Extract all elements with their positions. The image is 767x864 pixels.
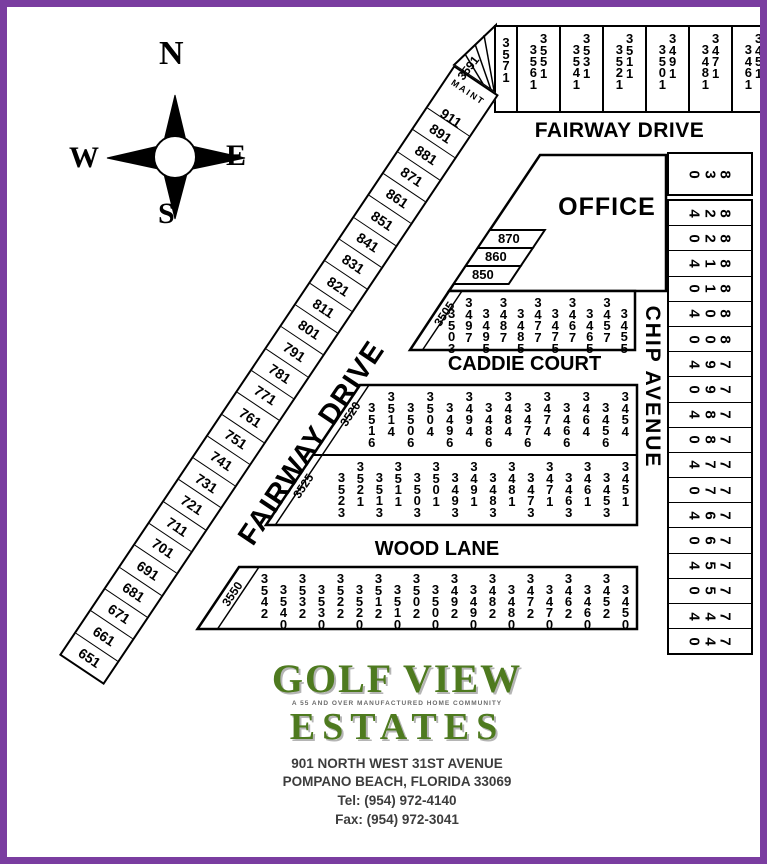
lot-cell: 3503: [443, 295, 460, 349]
lot-number-3492: 3492: [451, 573, 458, 627]
lot-cell: 3523: [332, 459, 351, 523]
caddie-court-north-lots: 3503349734953487348534773475346734653457…: [443, 295, 633, 349]
lot-cell: 3454: [616, 389, 636, 453]
lot-number-3497: 3497: [465, 297, 472, 349]
rotated-digit: 7: [717, 511, 734, 519]
lot-number-3462: 3462: [565, 573, 572, 627]
lot-number-3471: 3471: [712, 33, 719, 111]
top-row-cell: 34813471: [688, 27, 731, 111]
lot-860: 860: [485, 249, 507, 264]
lot-cell: 3501: [427, 459, 446, 523]
compass-s: S: [158, 197, 175, 231]
top-row-cell: 35613551: [516, 27, 559, 111]
rotated-digit: 0: [686, 385, 703, 393]
lot-cell: 3482: [483, 571, 502, 627]
lot-cell-760: 067: [669, 527, 751, 552]
lot-cell: 3450: [616, 571, 635, 627]
lot-number-3541: 3541: [573, 44, 580, 111]
rotated-digit: 7: [717, 536, 734, 544]
lot-number-3540: 3540: [280, 584, 287, 627]
lot-cell: 3462: [559, 571, 578, 627]
lot-cell: 3470: [540, 571, 559, 627]
lot-number-3457: 3457: [603, 297, 610, 349]
lot-cell: 3500: [426, 571, 445, 627]
lot-cell-740: 047: [669, 628, 751, 653]
lot-cell-784: 487: [669, 402, 751, 427]
lot-cell-750: 057: [669, 578, 751, 603]
street-caddie-court: CADDIE COURT: [427, 353, 622, 376]
lot-number-3561: 3561: [530, 44, 537, 111]
lot-cell-780: 087: [669, 427, 751, 452]
chip-avenue-lot-column: 038 428028418018408008497097487087477077…: [667, 152, 753, 655]
compass-e: E: [226, 139, 246, 173]
lot-number-3496: 3496: [446, 402, 453, 453]
lot-cell: 3520: [350, 571, 369, 627]
rotated-digit: 4: [686, 612, 703, 620]
lot-850: 850: [472, 267, 494, 282]
lot-number-3471: 3471: [546, 461, 553, 523]
lot-number-3511: 3511: [626, 33, 633, 111]
lot-cell: 3472: [521, 571, 540, 627]
lot-cell: 3452: [597, 571, 616, 627]
rotated-digit: 7: [717, 385, 734, 393]
rotated-digit: 4: [686, 461, 703, 469]
lot-number-3461: 3461: [745, 44, 752, 111]
lot-number-3490: 3490: [470, 584, 477, 627]
lot-number-3481: 3481: [508, 461, 515, 523]
lot-cell: 3455: [616, 295, 633, 349]
rotated-digit: 0: [686, 436, 703, 444]
lot-number-3463: 3463: [565, 472, 572, 523]
office-label: OFFICE: [547, 193, 667, 222]
lot-cell-774: 477: [669, 452, 751, 477]
lot-cell: 3542: [255, 571, 274, 627]
lot-cell: 3504: [421, 389, 441, 453]
rotated-digit: 4: [686, 562, 703, 570]
address-line1: 901 NORTH WEST 31ST AVENUE: [222, 755, 572, 773]
lot-cell: 3502: [407, 571, 426, 627]
lot-870: 870: [498, 231, 520, 246]
lot-cell: 3532: [293, 571, 312, 627]
lot-number-3491: 3491: [669, 33, 676, 111]
lot-cell: 3460: [578, 571, 597, 627]
lot-cell: 3471: [540, 459, 559, 523]
lot-number-3516: 3516: [368, 402, 375, 453]
lot-cell-810: 018: [669, 276, 751, 301]
lot-number-3501: 3501: [659, 44, 666, 111]
street-fairway-drive-top: FAIRWAY DRIVE: [522, 119, 717, 143]
lot-cell-790: 097: [669, 376, 751, 401]
lot-number-3470: 3470: [546, 584, 553, 627]
rotated-digit: 7: [717, 587, 734, 595]
lot-cell: 3497: [460, 295, 477, 349]
lot-cell: 3521: [351, 459, 370, 523]
lot-number-3456: 3456: [602, 402, 609, 453]
rotated-digit: 4: [686, 259, 703, 267]
lot-cell: 3484: [499, 389, 519, 453]
lot-number-3514: 3514: [388, 391, 395, 453]
lot-830-cell: 038: [667, 152, 753, 196]
address-line2: POMPANO BEACH, FLORIDA 33069: [222, 773, 572, 791]
rotated-digit: 4: [686, 310, 703, 318]
lot-cell-754: 457: [669, 553, 751, 578]
lot-cell: 3540: [274, 571, 293, 627]
lot-number-3487: 3487: [500, 297, 507, 349]
lot-cell-744: 447: [669, 603, 751, 628]
lot-number-3520: 3520: [356, 584, 363, 627]
lot-cell: 3490: [464, 571, 483, 627]
lot-number-3493: 3493: [451, 472, 458, 523]
top-row-cell: 35413531: [559, 27, 602, 111]
rotated-digit: 7: [717, 486, 734, 494]
lot-cell-770: 077: [669, 477, 751, 502]
rotated-digit: 0: [686, 335, 703, 343]
lot-number-3472: 3472: [527, 573, 534, 627]
rotated-digit: 4: [686, 410, 703, 418]
rotated-digit: 7: [717, 637, 734, 645]
rotated-digit: 7: [717, 410, 734, 418]
lot-number-3477: 3477: [534, 297, 541, 349]
rotated-digit: 8: [717, 284, 734, 292]
lot-cell: 3466: [557, 389, 577, 453]
rotated-digit: 8: [717, 209, 734, 217]
lot-cell: 3487: [495, 295, 512, 349]
lot-cell: 3475: [547, 295, 564, 349]
lot-number-3486: 3486: [485, 402, 492, 453]
rotated-digit: 8: [717, 310, 734, 318]
lot-cell: 3456: [596, 389, 616, 453]
lot-cell-814: 418: [669, 250, 751, 275]
logo-title-estates: ESTATES: [222, 707, 572, 747]
rotated-digit: 7: [717, 461, 734, 469]
rotated-digit: 0: [686, 486, 703, 494]
lot-number-3571: 3571: [502, 37, 509, 111]
lot-number-3453: 3453: [603, 472, 610, 523]
lot-cell-820: 028: [669, 225, 751, 250]
compass-rose: [107, 95, 245, 219]
lot-cell: 3493: [446, 459, 465, 523]
logo-title-golf-view: GOLF VIEW: [222, 659, 572, 699]
chip-avenue-cells: 4280284180184080084970974870874770774670…: [667, 199, 753, 655]
lot-number-3532: 3532: [299, 573, 306, 627]
compass-w: W: [69, 141, 99, 175]
wood-lane-south-lots: 3542354035323530352235203512351035023500…: [255, 571, 635, 627]
lot-cell: 3512: [369, 571, 388, 627]
lot-cell: 3474: [538, 389, 558, 453]
lot-number-3551: 3551: [540, 33, 547, 111]
lot-number-3452: 3452: [603, 573, 610, 627]
lot-number-3495: 3495: [483, 308, 490, 349]
rotated-digit: 7: [717, 436, 734, 444]
lot-cell: 3503: [408, 459, 427, 523]
lot-cell: 3463: [559, 459, 578, 523]
rotated-digit: 0: [686, 536, 703, 544]
plat-map-page: N W E S 35713561355135413531352135113501…: [0, 0, 767, 864]
lot-cell: 3457: [598, 295, 615, 349]
lot-cell: 3491: [465, 459, 484, 523]
lot-cell: 3464: [577, 389, 597, 453]
lot-number-3521: 3521: [357, 461, 364, 523]
lot-number-3451: 3451: [755, 33, 762, 111]
rotated-digit: 0: [686, 170, 703, 178]
phone-number: Tel: (954) 972-4140: [222, 791, 572, 810]
top-row-cell: 35213511: [602, 27, 645, 111]
fax-number: Fax: (954) 972-3041: [222, 810, 572, 829]
lot-cell: 3467: [564, 295, 581, 349]
lot-number-3502: 3502: [413, 573, 420, 627]
lot-cell: 3486: [479, 389, 499, 453]
lot-number-3461: 3461: [584, 461, 591, 523]
lot-number-3473: 3473: [527, 472, 534, 523]
rotated-digit: 0: [686, 284, 703, 292]
lot-number-3530: 3530: [318, 584, 325, 627]
lot-number-3464: 3464: [583, 391, 590, 453]
lot-cell-824: 428: [669, 201, 751, 225]
rotated-digit: 8: [717, 170, 734, 178]
top-row-cell: 35013491: [645, 27, 688, 111]
lot-number-3454: 3454: [622, 391, 629, 453]
lot-number-3455: 3455: [621, 308, 628, 349]
lot-number-3504: 3504: [427, 391, 434, 453]
lot-cell: 3476: [518, 389, 538, 453]
lot-cell: 3510: [388, 571, 407, 627]
lot-number-3531: 3531: [583, 33, 590, 111]
lot-cell: 3511: [389, 459, 408, 523]
lot-number-3522: 3522: [337, 573, 344, 627]
street-chip-avenue: CHIP AVENUE: [640, 287, 664, 487]
lot-number-3484: 3484: [505, 391, 512, 453]
rotated-digit: 4: [686, 511, 703, 519]
lot-number-3485: 3485: [517, 308, 524, 349]
lot-number-3510: 3510: [394, 584, 401, 627]
rotated-digit: 8: [717, 259, 734, 267]
street-wood-lane: WOOD LANE: [347, 538, 527, 561]
lot-number-3503: 3503: [448, 308, 455, 349]
lot-cell: 3477: [529, 295, 546, 349]
lot-number-3511: 3511: [395, 461, 402, 523]
lot-cell: 3451: [616, 459, 635, 523]
lot-cell: 3465: [581, 295, 598, 349]
caddie-court-south-lots: 3516351435063504349634943486348434763474…: [362, 389, 635, 453]
lot-number-3450: 3450: [622, 584, 629, 627]
lot-cell: 3480: [502, 571, 521, 627]
lot-number-3542: 3542: [261, 573, 268, 627]
rotated-digit: 8: [717, 335, 734, 343]
lot-number-3521: 3521: [616, 44, 623, 111]
lot-number-3460: 3460: [584, 584, 591, 627]
lot-number-3476: 3476: [524, 402, 531, 453]
rotated-digit: 8: [717, 234, 734, 242]
lot-number-3467: 3467: [569, 297, 576, 349]
lot-number-3482: 3482: [489, 573, 496, 627]
compass-n: N: [159, 35, 184, 73]
lot-cell-800: 008: [669, 326, 751, 351]
lot-number-3513: 3513: [376, 472, 383, 523]
lot-cell-804: 408: [669, 301, 751, 326]
lot-cell: 3496: [440, 389, 460, 453]
lot-number-3481: 3481: [702, 44, 709, 111]
lot-cell: 3453: [597, 459, 616, 523]
lot-number-3501: 3501: [433, 461, 440, 523]
rotated-digit: 0: [686, 587, 703, 595]
lot-cell: 3483: [484, 459, 503, 523]
lot-cell: 3530: [312, 571, 331, 627]
lot-cell-794: 497: [669, 351, 751, 376]
lot-number-3491: 3491: [470, 461, 477, 523]
lot-number-3506: 3506: [407, 402, 414, 453]
lot-number-3523: 3523: [338, 472, 345, 523]
rotated-digit: 7: [717, 612, 734, 620]
lot-cell: 3461: [578, 459, 597, 523]
top-row-cell: 3571: [496, 27, 516, 111]
lot-number-3465: 3465: [586, 308, 593, 349]
lot-cell: 3494: [460, 389, 480, 453]
lot-cell-764: 467: [669, 502, 751, 527]
rotated-digit: 0: [686, 234, 703, 242]
lot-number-3494: 3494: [466, 391, 473, 453]
lot-number-3480: 3480: [508, 584, 515, 627]
lot-cell: 3481: [502, 459, 521, 523]
lot-number-3512: 3512: [375, 573, 382, 627]
lot-number-3451: 3451: [622, 461, 629, 523]
lot-cell: 3485: [512, 295, 529, 349]
lot-number-3503: 3503: [414, 472, 421, 523]
lot-cell: 3516: [362, 389, 382, 453]
top-row-cell: 34613451: [731, 27, 767, 111]
lot-number-3475: 3475: [552, 308, 559, 349]
lot-number-3500: 3500: [432, 584, 439, 627]
wood-lane-north-lots: 3523352135133511350335013493349134833481…: [332, 459, 635, 523]
fairway-north-lot-row: 3571356135513541353135213511350134913481…: [494, 25, 767, 113]
lot-cell: 3506: [401, 389, 421, 453]
lot-number-3474: 3474: [544, 391, 551, 453]
lot-cell: 3513: [370, 459, 389, 523]
rotated-digit: 7: [717, 360, 734, 368]
lot-cell: 3514: [382, 389, 402, 453]
rotated-digit: 0: [686, 637, 703, 645]
lot-cell: 3522: [331, 571, 350, 627]
rotated-digit: 7: [717, 562, 734, 570]
lot-number-3466: 3466: [563, 402, 570, 453]
lot-cell: 3495: [478, 295, 495, 349]
lot-cell: 3473: [521, 459, 540, 523]
rotated-digit: 4: [686, 360, 703, 368]
community-logo-block: GOLF VIEW A 55 AND OVER MANUFACTURED HOM…: [222, 659, 572, 829]
lot-number-3483: 3483: [489, 472, 496, 523]
rotated-digit: 4: [686, 209, 703, 217]
lot-cell: 3492: [445, 571, 464, 627]
